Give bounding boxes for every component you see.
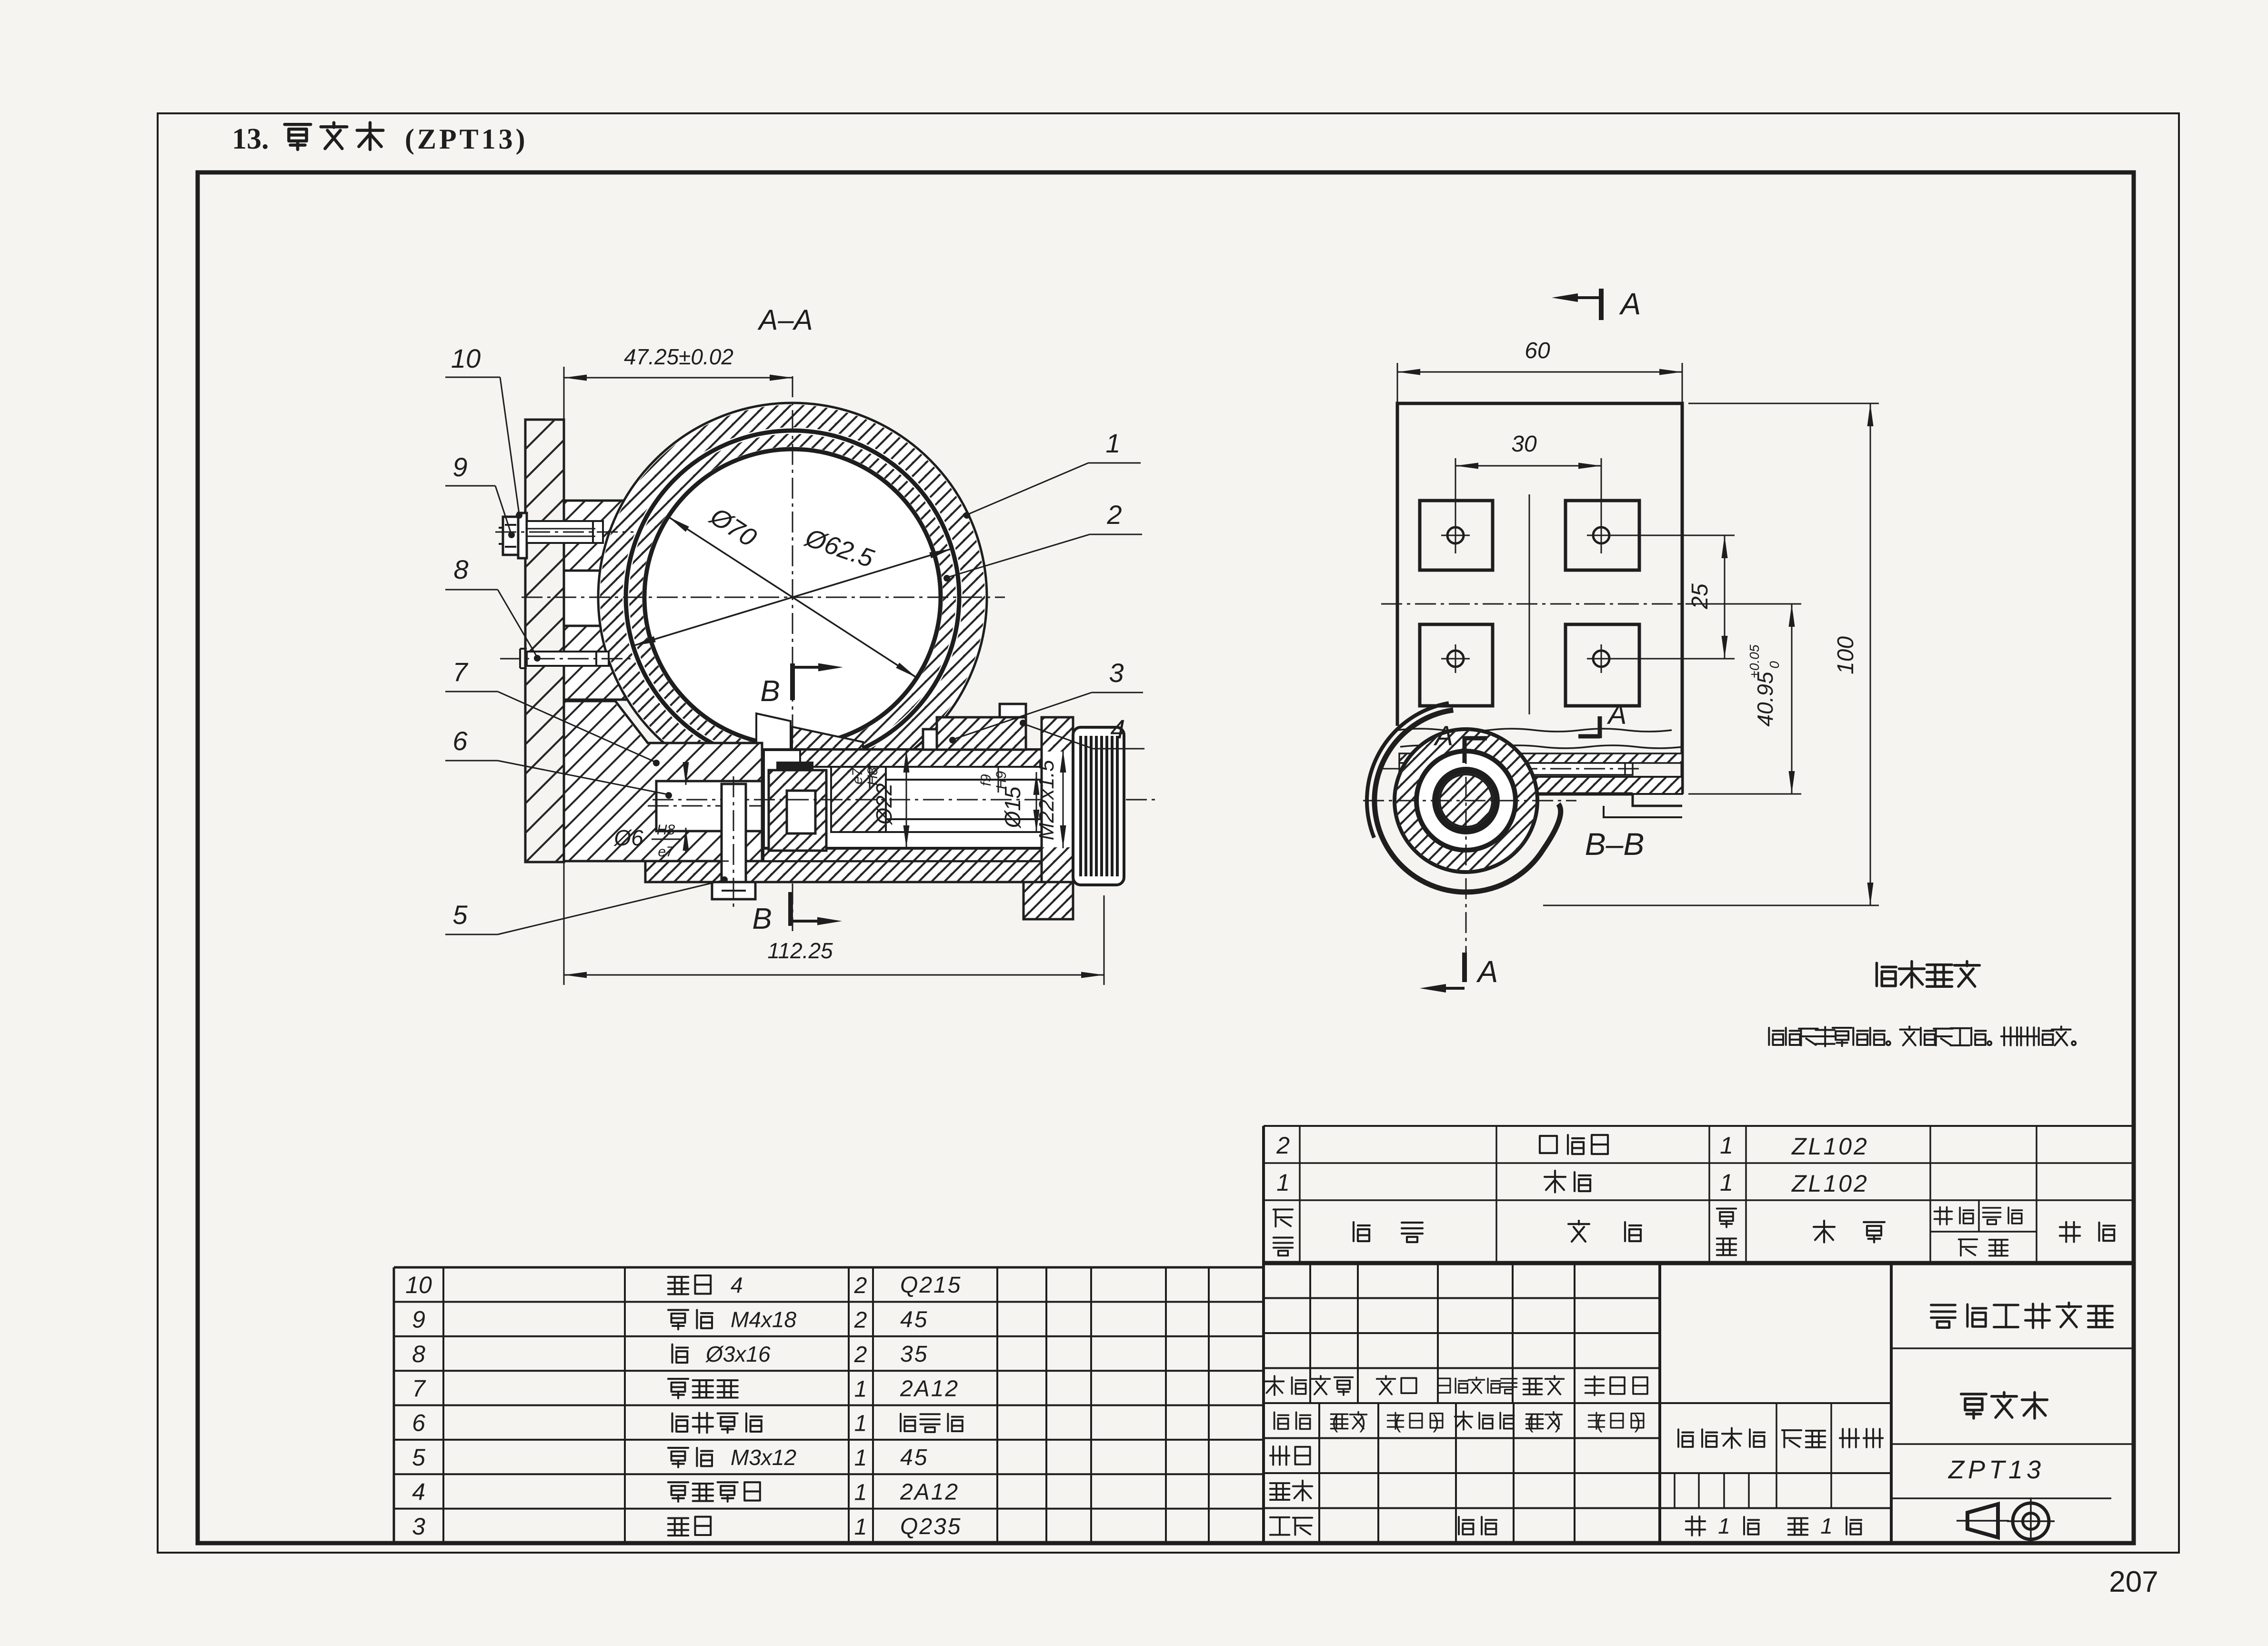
svg-text:A: A	[1476, 954, 1498, 989]
svg-text:207: 207	[2109, 1566, 2158, 1598]
svg-text:8: 8	[453, 554, 468, 584]
svg-text:Q215: Q215	[900, 1273, 962, 1298]
svg-text:f9: f9	[978, 774, 994, 786]
svg-text:45: 45	[900, 1445, 928, 1470]
svg-text:1: 1	[854, 1376, 867, 1402]
svg-text:1: 1	[854, 1411, 867, 1436]
svg-text:100: 100	[1833, 636, 1858, 674]
svg-text:9: 9	[412, 1306, 425, 1333]
svg-text:e7: e7	[850, 768, 865, 784]
svg-text:2: 2	[1106, 500, 1122, 530]
svg-text:M22x1.5: M22x1.5	[1035, 760, 1058, 840]
svg-text:1: 1	[1820, 1514, 1833, 1538]
svg-text:4: 4	[1110, 714, 1125, 744]
svg-text:5: 5	[452, 900, 468, 930]
svg-text:Q235: Q235	[900, 1514, 962, 1539]
svg-text:1: 1	[1720, 1169, 1733, 1196]
svg-text:B: B	[760, 675, 780, 708]
svg-text:47.25±0.02: 47.25±0.02	[624, 344, 733, 369]
svg-text:e7: e7	[658, 844, 674, 860]
svg-text:1: 1	[854, 1515, 867, 1540]
svg-text:A: A	[1607, 699, 1627, 730]
svg-text:1: 1	[1105, 428, 1120, 458]
svg-text:ZL102: ZL102	[1791, 1170, 1869, 1197]
svg-text:1: 1	[1276, 1169, 1290, 1196]
svg-text:Ø22: Ø22	[872, 783, 896, 826]
svg-text:B–B: B–B	[1585, 826, 1645, 862]
svg-text:1: 1	[854, 1480, 867, 1505]
svg-text:H8: H8	[865, 767, 881, 786]
svg-text:35: 35	[900, 1342, 928, 1367]
svg-text:6: 6	[412, 1410, 425, 1436]
svg-text:2: 2	[1276, 1132, 1290, 1159]
svg-text:112.25: 112.25	[767, 938, 833, 963]
svg-text:H8: H8	[657, 822, 675, 838]
svg-text:13.: 13.	[232, 123, 269, 155]
svg-text:3: 3	[412, 1513, 425, 1540]
svg-text:+0.05: +0.05	[1747, 644, 1762, 678]
svg-text:ZPT13: ZPT13	[1947, 1455, 2045, 1484]
svg-text:2: 2	[854, 1273, 867, 1298]
svg-text:4: 4	[412, 1478, 425, 1505]
svg-text:Ø6: Ø6	[613, 825, 643, 850]
svg-text:6: 6	[452, 726, 468, 756]
svg-text:A: A	[1434, 721, 1454, 752]
svg-text:7: 7	[412, 1375, 426, 1402]
svg-text:A: A	[1619, 287, 1641, 321]
svg-text:40.95: 40.95	[1753, 672, 1777, 727]
svg-text:1: 1	[1718, 1514, 1730, 1538]
svg-text:B: B	[752, 903, 772, 935]
svg-text:M3x12: M3x12	[731, 1445, 796, 1470]
svg-text:7: 7	[452, 657, 468, 687]
svg-text:1: 1	[1720, 1132, 1733, 1159]
svg-text:25: 25	[1687, 583, 1713, 610]
svg-text:2: 2	[854, 1308, 867, 1333]
svg-text:A–A: A–A	[757, 304, 813, 336]
svg-text:5: 5	[412, 1444, 425, 1471]
svg-text:10: 10	[451, 343, 481, 373]
svg-text:2A12: 2A12	[900, 1376, 959, 1401]
svg-text:2: 2	[854, 1342, 867, 1367]
svg-text:30: 30	[1511, 432, 1537, 457]
svg-text:3: 3	[1109, 658, 1124, 688]
svg-text:Ø15: Ø15	[1000, 786, 1025, 829]
svg-text:2A12: 2A12	[900, 1479, 959, 1505]
svg-text:1: 1	[854, 1445, 867, 1471]
svg-text:H9: H9	[994, 771, 1009, 790]
svg-text:ZL102: ZL102	[1791, 1133, 1869, 1160]
svg-text:4: 4	[731, 1273, 743, 1297]
svg-text:8: 8	[412, 1341, 425, 1367]
svg-text:0: 0	[1767, 661, 1782, 669]
svg-text:9: 9	[452, 452, 467, 482]
svg-text:60: 60	[1525, 338, 1550, 363]
svg-text:(ZPT13): (ZPT13)	[405, 123, 528, 155]
svg-text:M4x18: M4x18	[731, 1307, 796, 1332]
svg-text:Ø3x16: Ø3x16	[705, 1342, 771, 1366]
svg-text:45: 45	[900, 1307, 928, 1333]
svg-text:10: 10	[405, 1272, 432, 1298]
